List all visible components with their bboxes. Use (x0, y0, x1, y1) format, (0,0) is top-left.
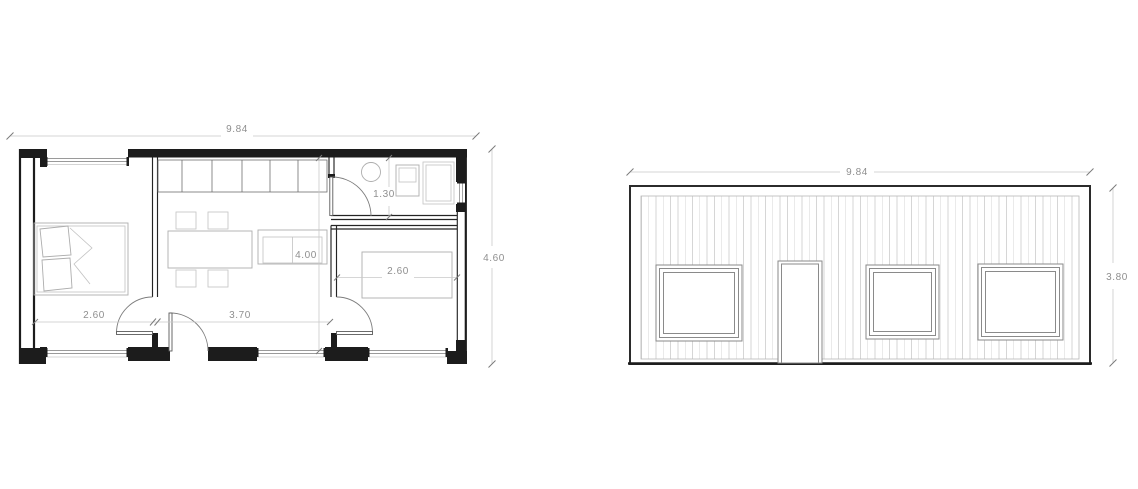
front-elevation: 9.84 3.80 (627, 167, 1128, 367)
door-swing-arc (337, 297, 373, 333)
door-swing-arc (170, 313, 208, 351)
chair (208, 270, 228, 287)
window-frame-inner (664, 273, 735, 334)
elevation-window-2-icon (866, 265, 939, 339)
window-cap (446, 348, 449, 357)
toilet-tank (399, 168, 416, 182)
dim-label-overall-depth: 4.60 (483, 253, 505, 264)
door-swing-arc (117, 297, 153, 333)
window-frame-inner (986, 272, 1056, 333)
pillow (40, 226, 71, 257)
table-outline (168, 231, 252, 268)
exterior-walls (19, 149, 467, 364)
elevation-window-1-icon (656, 265, 742, 341)
elevation-door-icon (778, 261, 822, 363)
window-bottom-center-icon (256, 348, 326, 357)
window-cap (45, 348, 48, 357)
corner-bottom-right (447, 351, 467, 364)
wall-top (128, 149, 467, 158)
chair (208, 212, 228, 229)
dim-label-bedroom-left: 2.60 (83, 310, 105, 321)
door-entrance-icon (169, 313, 208, 351)
window-cap (457, 203, 466, 206)
door-bedroom-right-icon (337, 297, 373, 335)
dim-label-elevation-height: 3.80 (1106, 272, 1128, 283)
window-bottom-left-icon (45, 348, 129, 357)
chair (176, 270, 196, 287)
window-cap (127, 157, 130, 166)
duvet-fold (70, 228, 92, 284)
wall-stub-bedroom-right (331, 333, 337, 348)
window-cap (256, 348, 259, 357)
door-bedroom-left-icon (117, 297, 153, 335)
shower-icon (423, 162, 454, 204)
dim-label-living-depth: 4.00 (295, 250, 317, 261)
shower-inner (426, 165, 451, 201)
pier-bottom-2 (208, 347, 257, 361)
plans-svg: 9.84 4.60 1.30 4.00 2.60 (0, 0, 1138, 489)
door-swing-arc (332, 177, 371, 216)
dim-label-bed-right: 2.60 (387, 266, 409, 277)
door-leaf (337, 332, 373, 335)
window-top-left-icon (45, 157, 129, 166)
wall-right-mid (456, 204, 466, 212)
window-opening (457, 183, 466, 204)
door-leaf (330, 177, 333, 216)
dim-label-living-width: 3.70 (229, 310, 251, 321)
window-cap (127, 348, 130, 357)
sink-icon (362, 163, 381, 182)
dim-label-bathroom: 1.30 (373, 189, 395, 200)
kitchen-counter-icon (158, 160, 327, 192)
pier-bottom-1 (128, 347, 170, 361)
door-bathroom-icon (330, 177, 371, 216)
drawing-canvas: 9.84 4.60 1.30 4.00 2.60 (0, 0, 1138, 489)
floor-plan-dimensions: 9.84 4.60 1.30 4.00 2.60 (7, 124, 505, 368)
window-cap (457, 181, 466, 184)
floor-plan: 9.84 4.60 1.30 4.00 2.60 (7, 124, 505, 368)
window-cap (45, 157, 48, 166)
dim-label-elevation-width: 9.84 (846, 167, 868, 178)
window-cap (324, 348, 327, 357)
door-leaf (117, 332, 153, 335)
bed-outline (34, 223, 128, 295)
wall-right-upper (456, 157, 466, 182)
bed-double-icon (34, 223, 128, 295)
dim-label-overall-width: 9.84 (226, 124, 248, 135)
door-frame-inner (782, 264, 819, 363)
window-frame-inner (874, 273, 932, 332)
window-bathroom-icon (457, 181, 467, 205)
counter-outline (158, 160, 327, 192)
elevation-window-3-icon (978, 264, 1063, 340)
door-leaf (169, 313, 172, 351)
dining-table-icon (168, 212, 252, 287)
chair (176, 212, 196, 229)
window-bottom-right-icon (367, 348, 448, 357)
pillow (42, 258, 72, 291)
wall-stub-bedroom-left (152, 333, 158, 348)
toilet-icon (396, 165, 419, 196)
pier-bottom-3 (325, 347, 368, 361)
window-cap (367, 348, 370, 357)
